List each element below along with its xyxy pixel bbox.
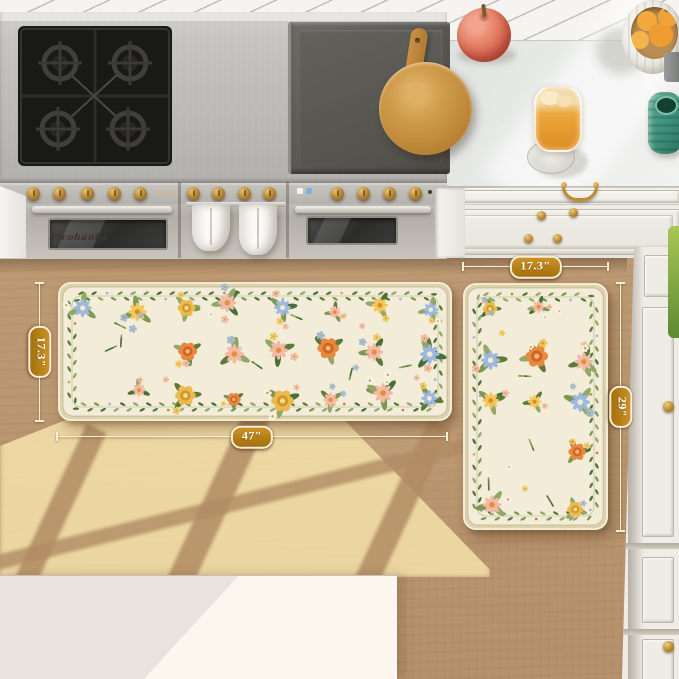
brass-knob xyxy=(553,234,562,243)
pantry-handle xyxy=(663,401,674,412)
display-icon xyxy=(306,188,312,194)
range-knob xyxy=(187,187,200,200)
indicator-light xyxy=(156,191,159,194)
oven-window xyxy=(306,216,398,245)
brass-knob xyxy=(569,208,578,217)
apple xyxy=(457,8,511,62)
pantry-handle xyxy=(663,641,674,652)
indicator-light xyxy=(162,191,165,194)
range-knob xyxy=(108,187,121,200)
cabinet-side-panel xyxy=(0,186,26,258)
white-table-surface xyxy=(0,575,397,679)
green-accent-object xyxy=(668,226,679,338)
panel-seam xyxy=(286,182,289,258)
range-brand-text: Picohanka xyxy=(49,233,108,243)
kitchen-towel xyxy=(192,204,230,251)
range-knob xyxy=(238,187,251,200)
range-knob xyxy=(134,187,147,200)
range-knob xyxy=(383,187,396,200)
range-knob xyxy=(263,187,276,200)
range-knob xyxy=(81,187,94,200)
range-knob xyxy=(27,187,40,200)
gas-cooktop xyxy=(18,26,172,166)
cutting-board xyxy=(379,62,472,155)
dim-line-runner-width: 17.3" xyxy=(39,283,40,421)
oven-handle xyxy=(32,206,172,213)
cutting-board-hole xyxy=(415,38,420,43)
dim-label-small-mat-length: 29" xyxy=(610,386,633,428)
dim-label-runner-width: 17.3" xyxy=(29,326,52,378)
range-knob xyxy=(53,187,66,200)
range-knob xyxy=(331,187,344,200)
orange-fruit xyxy=(631,31,649,49)
dim-line-small-mat-width: 17.3" xyxy=(463,266,608,267)
teal-vase xyxy=(648,92,679,154)
range-knob xyxy=(409,187,422,200)
dim-line-small-mat-length: 29" xyxy=(620,283,621,531)
kitchen-towel xyxy=(239,204,277,255)
brass-knob xyxy=(537,211,546,220)
oven-handle xyxy=(295,206,431,213)
indicator-light xyxy=(428,190,432,194)
dim-label-small-mat-width: 17.3" xyxy=(509,256,561,279)
persimmon-leaf xyxy=(664,7,674,12)
product-scene: Picohanka 17.3" 47" 17.3" xyxy=(0,0,679,679)
indicator-light xyxy=(168,191,171,194)
cabinet-side-panel xyxy=(435,188,465,258)
brass-knob xyxy=(524,234,533,243)
range-knob xyxy=(357,187,370,200)
floral-runner-mat xyxy=(58,282,452,421)
dim-line-runner-length: 47" xyxy=(57,436,447,437)
floral-small-mat xyxy=(463,283,608,530)
dim-label-runner-length: 47" xyxy=(231,426,273,449)
juice-glass xyxy=(534,86,582,152)
range-knob xyxy=(212,187,225,200)
panel-seam xyxy=(178,182,181,258)
stainless-range: Picohanka xyxy=(0,12,447,258)
display-icon xyxy=(297,188,303,194)
appliance-edge xyxy=(664,52,679,82)
